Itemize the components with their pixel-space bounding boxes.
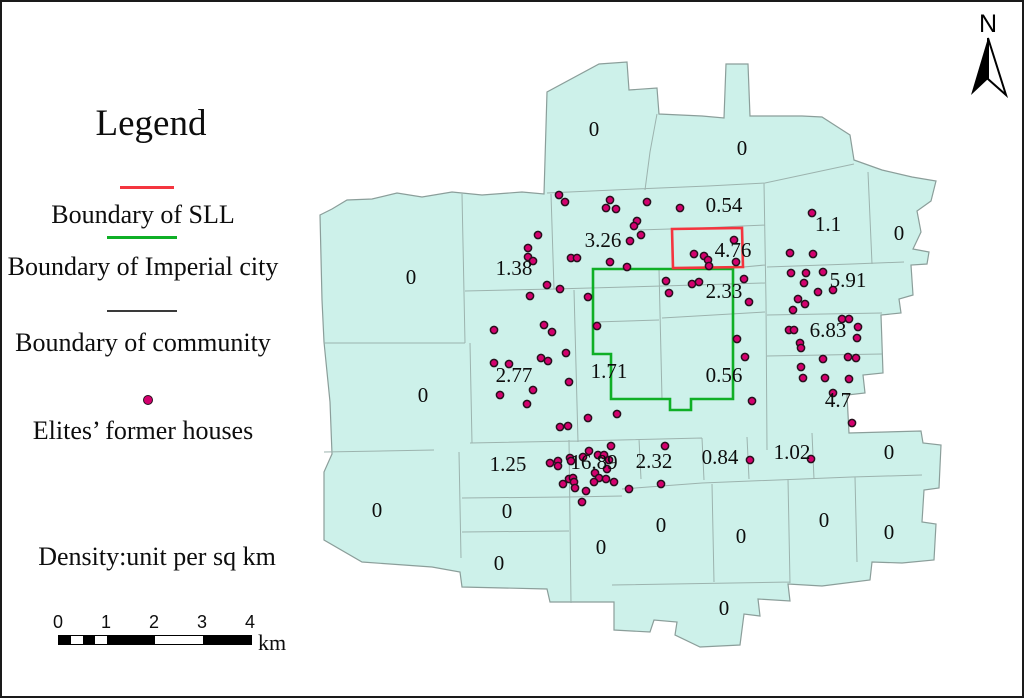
elite-house-dot	[845, 375, 852, 382]
legend-item-community: Boundary of community	[10, 328, 276, 358]
elite-house-dot	[613, 410, 620, 417]
elite-house-dot	[799, 374, 806, 381]
elite-house-dot	[814, 288, 821, 295]
elite-house-dot	[565, 378, 572, 385]
north-arrow-icon: N	[971, 10, 1006, 95]
elite-house-dot	[543, 281, 550, 288]
scale-tick-2: 2	[149, 612, 159, 633]
elite-house-dot	[544, 357, 551, 364]
scale-bar-strip	[58, 635, 252, 645]
elite-house-dot	[556, 423, 563, 430]
density-label: 5.91	[830, 268, 867, 292]
legend-item-elite-houses: Elites’ former houses	[28, 416, 258, 446]
elite-house-dot	[610, 478, 617, 485]
scale-tick-3: 3	[197, 612, 207, 633]
elite-house-dot	[809, 250, 816, 257]
density-label: 2.33	[706, 279, 743, 303]
elite-house-dot	[800, 279, 807, 286]
elite-house-dot	[797, 344, 804, 351]
elite-house-dot	[555, 191, 562, 198]
density-label: 0	[719, 596, 730, 620]
elite-house-dot	[794, 295, 801, 302]
elite-house-dot	[625, 485, 632, 492]
elite-house-dot	[524, 244, 531, 251]
elite-house-dot	[790, 326, 797, 333]
density-label: 4.7	[825, 388, 851, 412]
elite-house-dot	[540, 321, 547, 328]
elite-house-dot	[741, 353, 748, 360]
elite-house-dot	[623, 263, 630, 270]
elite-house-dot	[630, 222, 637, 229]
elite-house-dot	[606, 258, 613, 265]
density-label: 0	[596, 535, 607, 559]
elite-house-dot	[852, 354, 859, 361]
elite-house-dot	[582, 487, 589, 494]
density-label: 0	[589, 117, 600, 141]
density-label: 0	[884, 520, 895, 544]
elite-house-dot	[665, 289, 672, 296]
elite-house-dot	[602, 475, 609, 482]
elite-house-dot	[534, 231, 541, 238]
elite-house-dot	[695, 278, 702, 285]
elite-house-dot	[578, 498, 585, 505]
scale-tick-4: 4	[245, 612, 255, 633]
elite-house-dot	[561, 198, 568, 205]
elite-house-dot	[746, 456, 753, 463]
density-label: 0	[736, 524, 747, 548]
density-label: 0	[894, 221, 905, 245]
density-label: 0.84	[702, 445, 739, 469]
elite-house-dot	[802, 269, 809, 276]
density-label: 0	[418, 383, 429, 407]
elite-house-dot	[584, 414, 591, 421]
density-label: 0	[884, 440, 895, 464]
elite-house-dot	[562, 349, 569, 356]
elite-house-dot	[845, 315, 852, 322]
elite-house-dot	[496, 391, 503, 398]
elite-house-dot	[821, 374, 828, 381]
elite-house-dot	[786, 249, 793, 256]
density-label: 0	[502, 499, 513, 523]
elite-house-dot	[688, 280, 695, 287]
legend-item-sll: Boundary of SLL	[38, 200, 248, 230]
elite-house-dot	[690, 250, 697, 257]
density-label: 1.02	[774, 440, 811, 464]
density-label: 0	[494, 551, 505, 575]
density-unit-note: Density:unit per sq km	[28, 542, 286, 572]
elite-house-dot	[546, 459, 553, 466]
density-label: 0	[737, 136, 748, 160]
elite-house-dot	[844, 353, 851, 360]
density-label: 2.77	[496, 363, 533, 387]
density-label: 0	[406, 265, 417, 289]
density-label: 3.26	[585, 228, 622, 252]
north-label: N	[979, 10, 997, 38]
elite-house-dot	[602, 204, 609, 211]
elite-house-dot	[571, 484, 578, 491]
elite-house-dot	[797, 363, 804, 370]
elite-house-dot	[848, 419, 855, 426]
elite-house-dot	[819, 355, 826, 362]
density-label: 0	[656, 513, 667, 537]
elite-house-dot	[657, 480, 664, 487]
density-label: 1.1	[815, 212, 841, 236]
density-label: 0.56	[706, 363, 743, 387]
elite-house-dot	[662, 277, 669, 284]
elite-house-dot	[490, 326, 497, 333]
elite-house-dot	[537, 354, 544, 361]
community-line-swatch	[107, 310, 177, 312]
density-label: 1.25	[490, 452, 527, 476]
elite-house-dot	[556, 285, 563, 292]
elite-house-dot	[607, 442, 614, 449]
elite-house-dot	[584, 293, 591, 300]
elite-house-dot	[526, 292, 533, 299]
density-label: 1.38	[496, 256, 533, 280]
elite-house-dot	[637, 231, 644, 238]
legend-title: Legend	[86, 102, 216, 145]
density-label: 2.32	[636, 449, 673, 473]
density-label: 16.89	[570, 450, 617, 474]
elite-house-dot	[854, 323, 861, 330]
house-dot-swatch	[143, 395, 153, 405]
elite-house-dot	[590, 478, 597, 485]
elite-house-dot	[593, 322, 600, 329]
elite-house-dot	[676, 204, 683, 211]
elite-house-dot	[529, 386, 536, 393]
density-label: 1.71	[591, 359, 628, 383]
density-label: 0	[372, 498, 383, 522]
elite-house-dot	[626, 237, 633, 244]
elite-house-dot	[548, 328, 555, 335]
density-label: 0.54	[706, 193, 743, 217]
elite-house-dot	[606, 196, 613, 203]
elite-house-dot	[789, 306, 796, 313]
map-figure: 000.541.103.264.761.3805.912.336.832.771…	[0, 0, 1024, 698]
elite-house-dot	[564, 422, 571, 429]
elite-house-dot	[523, 400, 530, 407]
scale-tick-1: 1	[101, 612, 111, 633]
elite-house-dot	[787, 269, 794, 276]
elite-house-dot	[745, 298, 752, 305]
elite-house-dot	[801, 300, 808, 307]
density-label: 4.76	[715, 238, 752, 262]
legend-item-imperial-city: Boundary of Imperial city	[4, 252, 282, 282]
imperial-line-swatch	[107, 236, 177, 239]
elite-house-dot	[643, 198, 650, 205]
elite-house-dot	[705, 262, 712, 269]
sll-line-swatch	[120, 186, 174, 189]
elite-house-dot	[554, 462, 561, 469]
elite-house-dot	[853, 334, 860, 341]
elite-house-dot	[819, 268, 826, 275]
elite-house-dot	[748, 397, 755, 404]
elite-house-dot	[733, 335, 740, 342]
scale-unit-label: km	[258, 630, 286, 656]
density-label: 0	[819, 508, 830, 532]
density-label: 6.83	[810, 318, 847, 342]
elite-house-dot	[573, 254, 580, 261]
elite-house-dot	[612, 205, 619, 212]
scale-tick-0: 0	[53, 612, 63, 633]
